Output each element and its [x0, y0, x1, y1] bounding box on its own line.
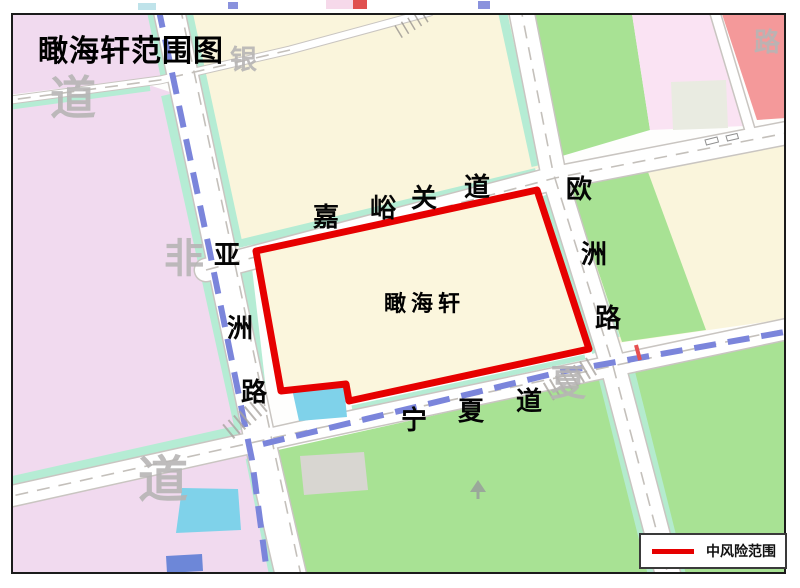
legend-label: 中风险范围 — [706, 541, 776, 561]
road-label-yazhou: 亚 — [212, 235, 242, 272]
road-label-jiayuguan: 嘉 — [311, 197, 341, 234]
faded-road-label: 道 — [50, 62, 96, 128]
edge-sliver — [228, 2, 238, 9]
margin-left — [0, 0, 11, 588]
page-title: 瞰海轩范围图 — [38, 26, 224, 70]
faded-road-label: 银 — [230, 38, 257, 77]
road-label-jiayuguan: 道 — [462, 167, 492, 204]
road-label-ningxia: 道 — [514, 381, 544, 418]
legend: 中风险范围 — [639, 533, 787, 569]
faded-road-label: 非 — [164, 226, 204, 284]
margin-bottom — [0, 574, 800, 588]
risk-line-swatch — [652, 549, 694, 554]
margin-right — [786, 0, 800, 588]
edge-sliver — [138, 3, 156, 10]
road-label-yazhou: 洲 — [225, 308, 255, 345]
margin-top — [0, 0, 800, 13]
risk-area-label: 瞰海轩 — [384, 286, 465, 318]
road-label-jiayuguan: 关 — [409, 178, 439, 215]
road-label-ouzhou: 洲 — [579, 234, 609, 271]
faded-road-label: 夏 — [550, 354, 586, 406]
edge-sliver — [326, 0, 356, 9]
road-label-ouzhou: 欧 — [564, 169, 594, 206]
faded-road-label: 道 — [138, 440, 188, 512]
road-label-jiayuguan: 峪 — [368, 188, 398, 225]
edge-sliver — [478, 1, 490, 9]
edge-sliver — [353, 0, 367, 9]
road-label-ningxia: 宁 — [399, 400, 429, 437]
road-label-ningxia: 夏 — [456, 391, 486, 428]
faded-road-label: 路 — [754, 22, 780, 59]
map-figure: 道 银 非 道 夏 路 嘉 峪 关 道 宁 夏 道 亚 洲 路 欧 洲 路 瞰海… — [0, 0, 800, 588]
road-label-ouzhou: 路 — [593, 298, 623, 335]
road-label-yazhou: 路 — [239, 372, 269, 409]
